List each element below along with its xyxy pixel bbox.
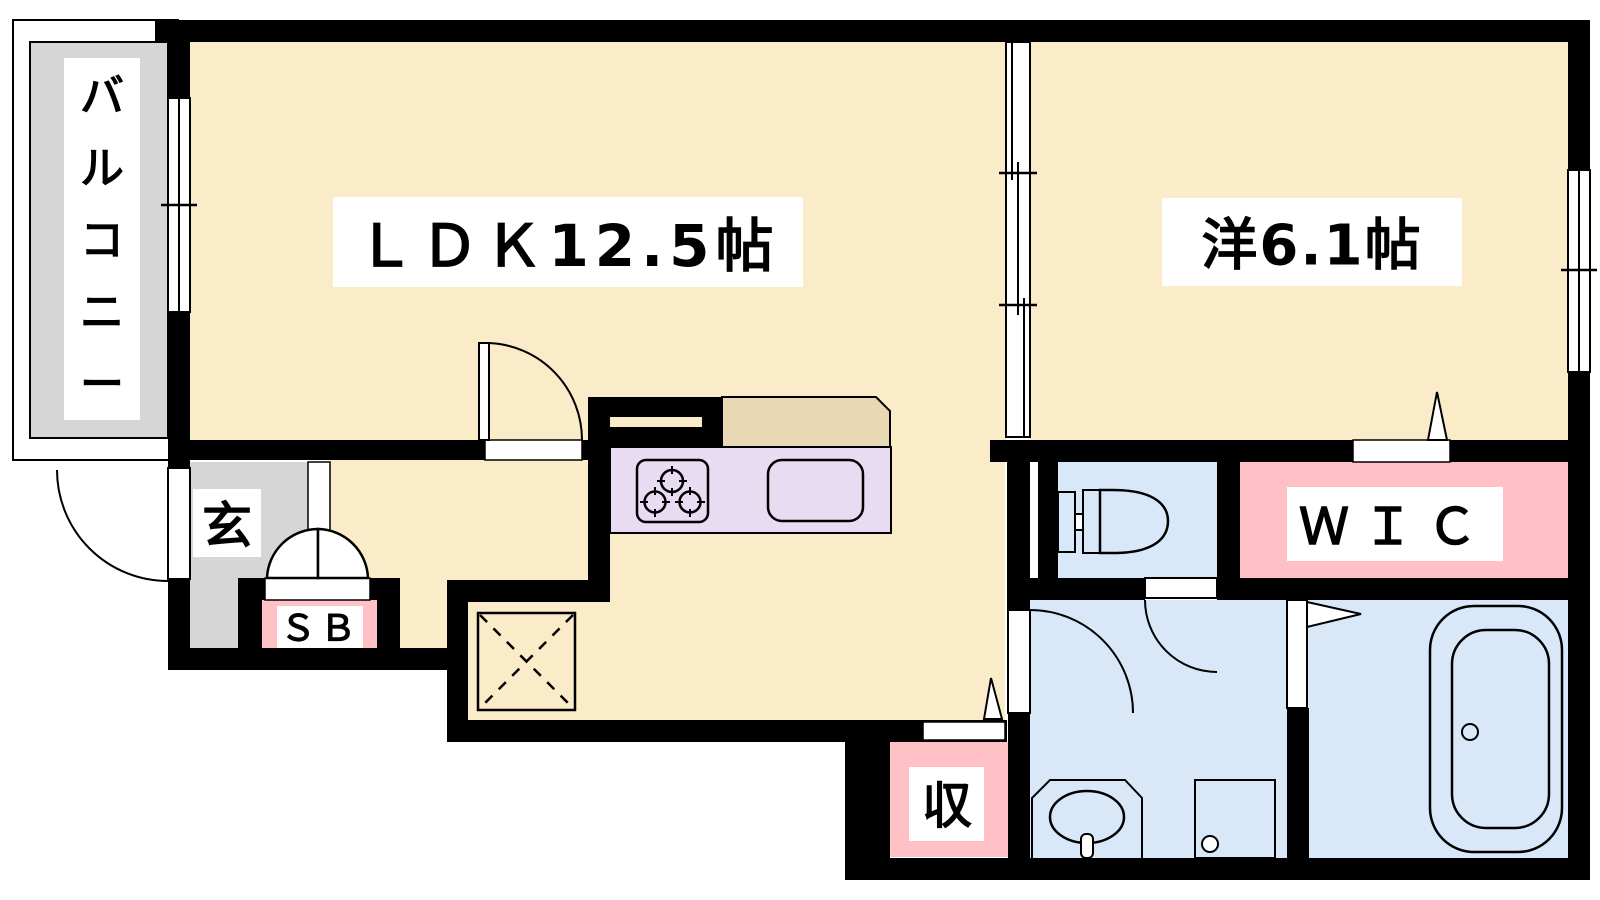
floor-plan: バルコニー	[0, 0, 1600, 900]
floor-plan-canvas: バルコニー	[0, 0, 1600, 900]
wall-segment	[447, 580, 468, 737]
floor-entrance-lower	[190, 578, 238, 648]
wall-segment	[1030, 578, 1145, 600]
door-opening	[485, 440, 582, 460]
floor-hall-nook	[400, 578, 447, 648]
entrance-label: 玄	[202, 497, 252, 555]
pan-drain	[1202, 836, 1218, 852]
wall-segment	[1450, 440, 1568, 462]
door-opening	[265, 578, 370, 600]
toilet-flush-handle	[1075, 514, 1083, 530]
wall-segment	[238, 578, 262, 648]
wall-segment	[168, 440, 487, 460]
balcony: バルコニー	[13, 20, 178, 460]
western-room-label: 洋6.1帖	[1201, 214, 1422, 279]
balcony-label: バルコニー	[80, 71, 124, 410]
shoe-box-label: ＳＢ	[280, 609, 360, 650]
wall-segment	[168, 20, 190, 100]
wall-segment	[447, 580, 610, 602]
door-opening	[923, 722, 1005, 740]
kitchen-pass-slot	[610, 417, 702, 427]
door-leaf	[479, 343, 489, 440]
kitchen-counter-top	[722, 397, 890, 447]
door-opening	[1353, 440, 1450, 462]
wall-segment	[377, 578, 400, 648]
wall-segment	[1038, 462, 1058, 578]
floor-hall	[330, 460, 588, 580]
ldk-label: ＬＤＫ12.5帖	[356, 212, 779, 280]
wall-segment	[1007, 440, 1030, 612]
entrance-door[interactable]	[57, 468, 190, 581]
wall-segment	[155, 20, 1590, 42]
wall-segment	[1217, 462, 1240, 600]
wall-segment	[1287, 708, 1309, 880]
wall-segment	[845, 720, 890, 880]
wall-segment	[1568, 42, 1590, 880]
wall-segment	[168, 648, 447, 670]
wall-segment	[1008, 710, 1030, 880]
door-leaf	[168, 468, 190, 579]
toilet-door-pocket	[1030, 462, 1038, 576]
storage-label: 収	[922, 777, 972, 835]
floor-bathroom	[1307, 600, 1568, 858]
door-leaf	[1145, 578, 1217, 598]
wic-label: ＷＩＣ	[1299, 498, 1491, 556]
floor-corridor	[468, 602, 610, 722]
door-leaf	[1008, 610, 1030, 713]
basin-faucet	[1081, 834, 1093, 858]
door-swing-arc	[57, 470, 168, 581]
floor-washroom	[1030, 600, 1287, 858]
wall-segment	[1240, 578, 1568, 600]
wall-segment	[845, 858, 1590, 880]
door-leaf	[1287, 600, 1307, 708]
wall-segment	[990, 440, 1353, 462]
